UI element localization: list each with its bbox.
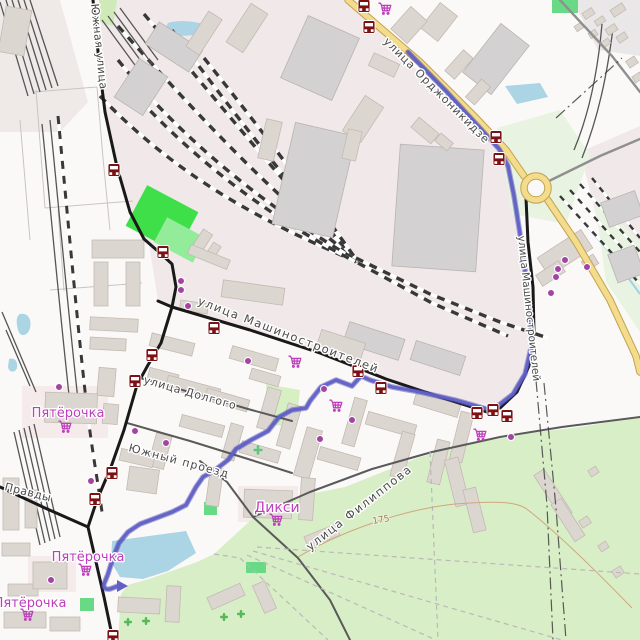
bus-wheel — [114, 475, 117, 478]
bus-windshield — [148, 351, 156, 354]
building — [118, 597, 161, 614]
bus-stop-icon[interactable] — [208, 322, 220, 335]
bus-wheel — [165, 254, 168, 257]
cart-wheel — [297, 365, 300, 368]
bus-stop-icon[interactable] — [501, 410, 513, 423]
bus-wheel — [359, 8, 362, 11]
shop-dot[interactable] — [553, 274, 560, 281]
playground-icon-part — [257, 452, 260, 455]
bus-windshield — [503, 412, 511, 415]
shop-dot[interactable] — [132, 428, 139, 435]
bus-windshield — [377, 384, 385, 387]
building — [94, 262, 108, 306]
building — [126, 466, 159, 494]
tree-icon-part — [220, 616, 228, 618]
playground-icon-part — [260, 449, 263, 452]
building — [299, 478, 316, 521]
bus-wheel — [472, 415, 475, 418]
shop-dot[interactable] — [584, 264, 591, 271]
cart-wheel — [382, 12, 385, 15]
building — [165, 586, 181, 623]
shop-dot[interactable] — [508, 434, 515, 441]
cart-wheel — [24, 618, 27, 621]
cart-wheel — [62, 430, 65, 433]
bus-wheel — [90, 501, 93, 504]
tree-icon-part — [124, 621, 132, 623]
bus-stop-icon[interactable] — [107, 630, 119, 640]
bus-wheel — [360, 373, 363, 376]
bus-wheel — [501, 161, 504, 164]
shop-dot[interactable] — [548, 290, 555, 297]
bus-windshield — [110, 166, 118, 169]
building — [50, 617, 80, 631]
shop-dot[interactable] — [178, 278, 185, 285]
bus-windshield — [91, 495, 99, 498]
bus-stop-icon[interactable] — [129, 375, 141, 388]
cart-wheel — [29, 618, 32, 621]
bus-stop-icon[interactable] — [358, 0, 370, 13]
bus-windshield — [473, 409, 481, 412]
building — [90, 337, 127, 351]
bus-wheel — [216, 330, 219, 333]
shop-dot[interactable] — [555, 266, 562, 273]
bus-stop-icon[interactable] — [363, 21, 375, 34]
bus-wheel — [488, 412, 491, 415]
shop-dot[interactable] — [88, 478, 95, 485]
bus-wheel — [479, 415, 482, 418]
tree-icon-part — [237, 613, 245, 615]
bus-stop-icon[interactable] — [106, 467, 118, 480]
bus-windshield — [109, 632, 117, 635]
cart-wheel — [87, 573, 90, 576]
cart-wheel — [278, 523, 281, 526]
cart-wheel — [482, 438, 485, 441]
bus-wheel — [494, 161, 497, 164]
bus-windshield — [492, 133, 500, 136]
bus-wheel — [154, 357, 157, 360]
green-area — [80, 598, 94, 611]
building — [90, 317, 139, 332]
bus-wheel — [209, 330, 212, 333]
bus-windshield — [495, 155, 503, 158]
shop-label: Пятёрочка — [52, 550, 125, 565]
building — [92, 240, 144, 258]
cart-wheel — [273, 523, 276, 526]
bus-wheel — [498, 139, 501, 142]
bus-windshield — [108, 469, 116, 472]
building — [102, 403, 119, 424]
bus-wheel — [376, 390, 379, 393]
bus-stop-icon[interactable] — [471, 407, 483, 420]
cart-wheel — [82, 573, 85, 576]
shop-label: Пятёрочка — [0, 596, 66, 611]
shop-dot[interactable] — [321, 386, 328, 393]
playground-icon-part — [256, 448, 260, 452]
green-area — [246, 562, 266, 573]
shop-dot[interactable] — [48, 577, 55, 584]
shop-dot[interactable] — [178, 287, 185, 294]
shop-dot[interactable] — [163, 440, 170, 447]
building — [126, 262, 140, 306]
building — [2, 543, 30, 556]
bus-stop-icon[interactable] — [157, 246, 169, 259]
bus-wheel — [353, 373, 356, 376]
bus-windshield — [159, 248, 167, 251]
cart-wheel — [67, 430, 70, 433]
building — [392, 144, 484, 272]
cart-wheel — [292, 365, 295, 368]
bus-stop-icon[interactable] — [375, 382, 387, 395]
bus-wheel — [97, 501, 100, 504]
cart-wheel — [387, 12, 390, 15]
playground-icon-part — [257, 445, 260, 448]
bus-wheel — [137, 383, 140, 386]
bus-wheel — [383, 390, 386, 393]
bus-windshield — [131, 377, 139, 380]
map-canvas[interactable]: Южная улицаулица Орджоникидзеулица Машин… — [0, 0, 640, 640]
bus-stop-icon[interactable] — [493, 153, 505, 166]
bus-windshield — [360, 2, 368, 5]
bus-windshield — [365, 23, 373, 26]
bus-wheel — [130, 383, 133, 386]
shop-dot[interactable] — [317, 436, 324, 443]
shop-dot[interactable] — [349, 417, 356, 424]
shop-dot[interactable] — [56, 384, 63, 391]
bus-wheel — [502, 418, 505, 421]
cart-wheel — [333, 409, 336, 412]
bus-wheel — [509, 418, 512, 421]
shop-dot[interactable] — [185, 303, 192, 310]
bus-wheel — [495, 412, 498, 415]
bus-stop-icon[interactable] — [108, 164, 120, 177]
bus-wheel — [491, 139, 494, 142]
shop-label: Дикси — [254, 500, 299, 516]
shop-dot[interactable] — [245, 358, 252, 365]
cart-wheel — [477, 438, 480, 441]
tree-icon-part — [142, 620, 150, 622]
bus-wheel — [109, 172, 112, 175]
bus-stop-icon[interactable] — [89, 493, 101, 506]
building — [33, 562, 67, 589]
shop-label: Пятёрочка — [32, 406, 105, 421]
bus-wheel — [147, 357, 150, 360]
bus-stop-icon[interactable] — [487, 404, 499, 417]
bus-stop-icon[interactable] — [146, 349, 158, 362]
building — [97, 367, 116, 396]
playground-icon-part — [253, 449, 256, 452]
map-viewport[interactable]: Южная улицаулица Орджоникидзеулица Машин… — [0, 0, 640, 640]
bus-windshield — [210, 324, 218, 327]
bus-wheel — [107, 475, 110, 478]
bus-wheel — [371, 29, 374, 32]
shop-dot[interactable] — [562, 257, 569, 264]
cart-wheel — [338, 409, 341, 412]
bus-wheel — [116, 172, 119, 175]
bus-wheel — [366, 8, 369, 11]
bus-windshield — [489, 406, 497, 409]
bus-wheel — [364, 29, 367, 32]
bus-wheel — [158, 254, 161, 257]
